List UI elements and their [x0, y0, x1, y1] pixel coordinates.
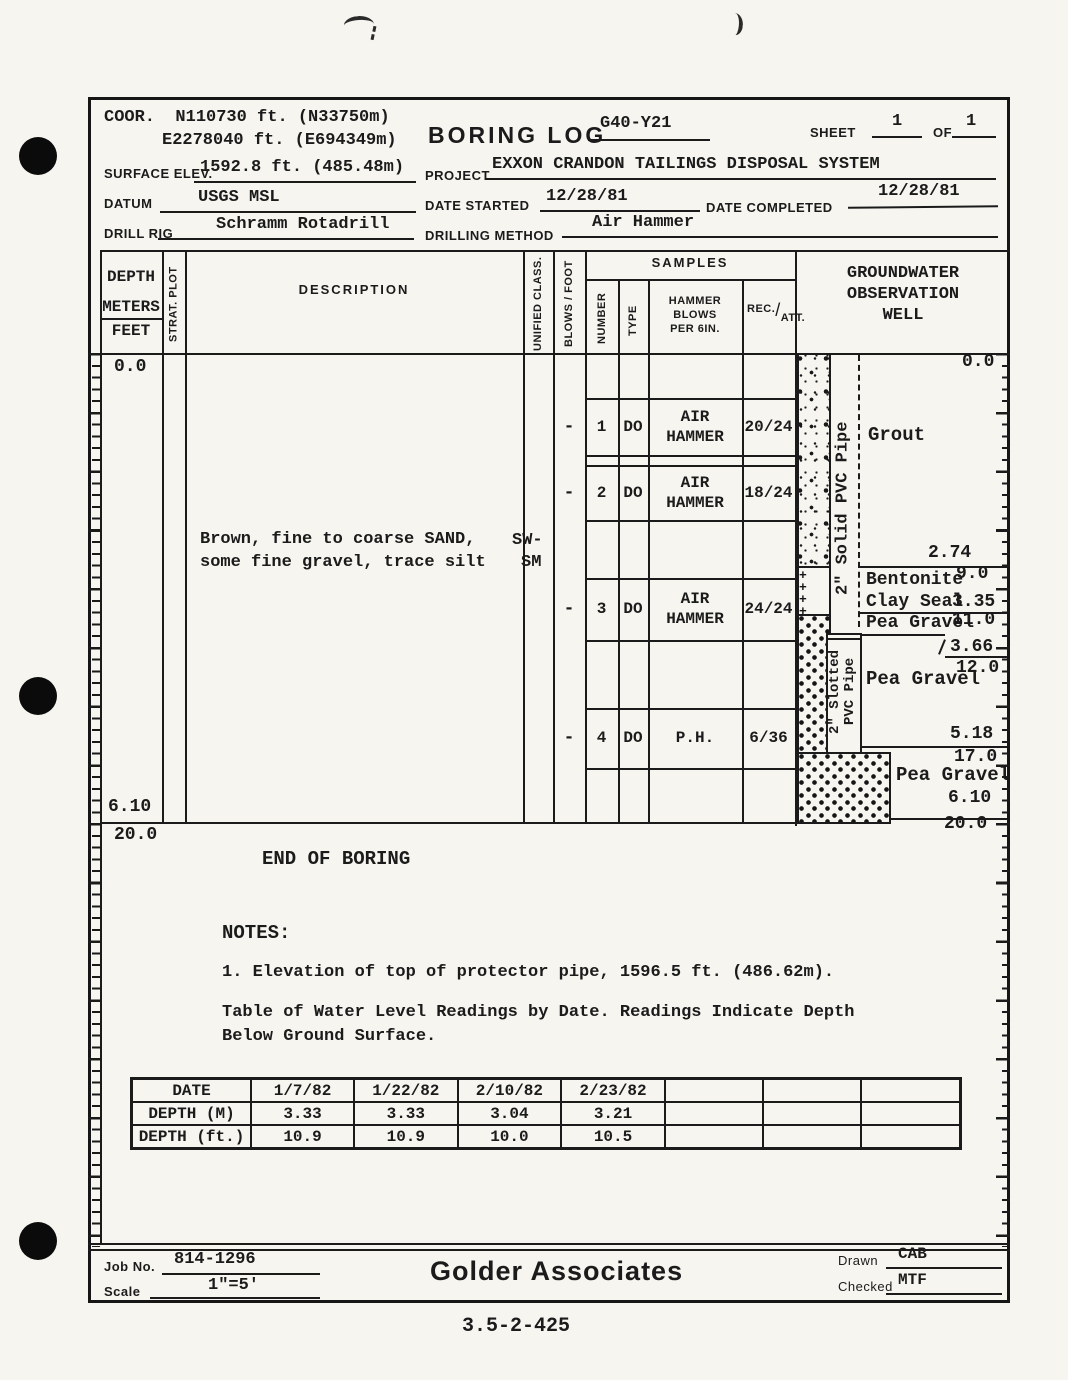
grid-line — [88, 1243, 1010, 1245]
well-depth-mark: 11.0 — [952, 610, 995, 630]
project-value: EXXON CRANDON TAILINGS DISPOSAL SYSTEM — [492, 155, 880, 174]
blows-value: - — [553, 465, 585, 520]
grid-line — [585, 279, 795, 281]
rule-line — [162, 1273, 320, 1275]
surface-elev-value: 1592.8 ft. (485.48m) — [200, 158, 404, 177]
table-cell: 3.04 — [458, 1102, 562, 1125]
drilling-method-label: DRILLING METHOD — [425, 228, 554, 243]
sample-number: 1 — [585, 418, 618, 436]
checked-label: Checked — [838, 1279, 893, 1294]
table-cell: 10.0 — [458, 1125, 562, 1149]
strat-plot-column-header: STRAT. PLOT — [162, 258, 185, 350]
punch-hole — [19, 137, 57, 175]
sample-row: 4 DO P.H. 6/36 — [585, 708, 795, 768]
rule-line — [160, 211, 416, 213]
well-zone-label-grout: Grout — [868, 424, 925, 446]
feet-label: FEET — [100, 322, 162, 340]
rule-line — [158, 238, 414, 240]
water-table-caption-line1: Table of Water Level Readings by Date. R… — [222, 1003, 855, 1022]
table-cell — [665, 1125, 763, 1149]
depth-ruler-right-minor — [1002, 353, 1010, 1247]
date-completed-label: DATE COMPLETED — [706, 200, 833, 215]
description-line: Brown, fine to coarse SAND, — [200, 528, 486, 551]
well-depth-mark: 2.74 — [928, 543, 971, 563]
well-header-line: GROUNDWATER — [847, 263, 959, 284]
date-completed-value: 12/28/81 — [878, 182, 960, 201]
unified-class-value: SW- SM — [512, 530, 543, 574]
unified-class-column-header: UNIFIED CLASS. — [524, 256, 552, 352]
water-table-caption-line2: Below Ground Surface. — [222, 1027, 436, 1046]
table-cell: 3.21 — [561, 1102, 665, 1125]
sample-type: DO — [618, 418, 648, 436]
depth-mark-bottom-ft: 20.0 — [114, 825, 157, 845]
rule-line — [486, 178, 996, 180]
sample-number: 3 — [585, 600, 618, 618]
sample-type: DO — [618, 729, 648, 747]
table-cell: 2/10/82 — [458, 1079, 562, 1103]
table-cell — [763, 1079, 861, 1103]
table-cell — [763, 1125, 861, 1149]
pen-mark — [343, 14, 375, 35]
note-item-1: 1. Elevation of top of protector pipe, 1… — [222, 963, 834, 982]
table-row: DEPTH (ft.) 10.9 10.9 10.0 10.5 — [132, 1125, 961, 1149]
pipe-edge-dashed-line — [858, 355, 860, 627]
grid-line — [185, 250, 187, 822]
document-title: BORING LOG — [428, 122, 606, 149]
hammer-blows-column-header: HAMMER BLOWS PER 6IN. — [648, 294, 742, 336]
slash-glyph: / — [775, 300, 781, 320]
sample-type: DO — [618, 484, 648, 502]
table-cell: 10.9 — [354, 1125, 458, 1149]
well-depth-mark: 20.0 — [944, 814, 987, 834]
drawn-label: Drawn — [838, 1253, 878, 1268]
sample-rec-att: 18/24 — [742, 484, 795, 502]
type-column-header: TYPE — [620, 292, 646, 350]
datum-value: USGS MSL — [198, 188, 280, 207]
grid-line — [585, 455, 795, 457]
drawn-value: CAB — [898, 1245, 927, 1263]
depth-mark-top: 0.0 — [114, 357, 146, 377]
sample-hammer-blows: P.H. — [648, 728, 742, 748]
well-bentonite-annulus: + + + + + + + + + + + + + + + + + + + + … — [797, 566, 831, 618]
table-cell: 10.9 — [251, 1125, 354, 1149]
rule-line — [540, 210, 700, 212]
well-header-line: WELL — [883, 305, 924, 326]
blows-value: - — [553, 708, 585, 768]
well-depth-mark: 3.66 — [950, 637, 993, 657]
job-no-value: 814-1296 — [174, 1250, 256, 1269]
table-cell — [665, 1079, 763, 1103]
samples-header: SAMPLES — [585, 255, 795, 270]
depth-column-header: DEPTH — [100, 268, 162, 286]
sample-row: 2 DO AIR HAMMER 18/24 — [585, 465, 795, 520]
slotted-pipe-section: 2" Slotted PVC Pipe — [826, 633, 862, 754]
description-column-header: DESCRIPTION — [185, 282, 523, 297]
sample-row: 3 DO AIR HAMMER 24/24 — [585, 578, 795, 640]
punch-hole — [19, 677, 57, 715]
sample-rec-att: 24/24 — [742, 600, 795, 618]
well-zone-label-bentonite-2: Clay Seal — [866, 592, 963, 612]
grid-line — [100, 353, 1010, 355]
sample-hammer-blows: AIR HAMMER — [648, 407, 742, 447]
checked-value: MTF — [898, 1271, 927, 1289]
table-cell — [665, 1102, 763, 1125]
drill-rig-value: Schramm Rotadrill — [216, 215, 389, 234]
table-cell: 10.5 — [561, 1125, 665, 1149]
depth-mark-bottom-m: 6.10 — [108, 797, 151, 817]
notes-heading: NOTES: — [222, 922, 290, 944]
rule-line — [886, 1267, 1002, 1269]
well-pea-gravel-base — [797, 752, 891, 824]
project-label: PROJECT — [425, 168, 490, 183]
table-row: DATE 1/7/82 1/22/82 2/10/82 2/23/82 — [132, 1079, 961, 1103]
sample-hammer-blows: AIR HAMMER — [648, 473, 742, 513]
grid-line — [585, 520, 795, 522]
rule-line — [952, 136, 996, 138]
grid-line — [100, 822, 795, 824]
description-line: some fine gravel, trace silt — [200, 551, 486, 574]
coordinates-east: E2278040 ft. (E694349m) — [162, 131, 397, 150]
coordinates-north: COOR. N110730 ft. (N33750m) — [104, 108, 390, 127]
boring-id: G40-Y21 — [600, 114, 671, 133]
grid-line — [585, 768, 795, 770]
well-grout-annulus — [797, 355, 831, 566]
sample-rec-att: 6/36 — [742, 729, 795, 747]
well-depth-mark: 5.18 — [950, 724, 993, 744]
datum-label: DATUM — [104, 196, 152, 211]
table-cell — [763, 1102, 861, 1125]
table-cell — [861, 1125, 961, 1149]
well-zone-line — [862, 634, 945, 636]
slotted-pvc-pipe-label: 2" Slotted PVC Pipe — [828, 635, 860, 748]
table-row: DEPTH (M) 3.33 3.33 3.04 3.21 — [132, 1102, 961, 1125]
end-of-boring-text: END OF BORING — [262, 848, 410, 870]
grid-line — [100, 250, 102, 1245]
rule-line — [886, 1293, 1002, 1295]
of-label: OF — [933, 125, 952, 140]
solid-pvc-pipe-label: 2" Solid PVC Pipe — [828, 368, 858, 648]
row-label: DEPTH (ft.) — [132, 1125, 252, 1149]
rule-line — [588, 139, 710, 141]
well-depth-mark: 3.35 — [952, 592, 995, 612]
well-zone-label-pea-gravel-3: Pea Gravel — [896, 764, 1010, 786]
scale-value: 1"=5' — [208, 1276, 259, 1295]
table-cell — [861, 1079, 961, 1103]
soil-description: Brown, fine to coarse SAND, some fine gr… — [200, 528, 486, 574]
unified-class-line: SW- — [512, 530, 543, 552]
document-number: 3.5-2-425 — [462, 1315, 570, 1338]
drilling-method-value: Air Hammer — [592, 213, 694, 232]
date-started-value: 12/28/81 — [546, 187, 628, 206]
water-level-table: DATE 1/7/82 1/22/82 2/10/82 2/23/82 DEPT… — [130, 1077, 962, 1150]
job-no-label: Job No. — [104, 1259, 155, 1274]
pen-mark — [726, 12, 744, 36]
sheet-number: 1 — [892, 112, 902, 131]
row-label: DATE — [132, 1079, 252, 1103]
company-name: Golder Associates — [430, 1256, 683, 1287]
row-label: DEPTH (M) — [132, 1102, 252, 1125]
surface-elev-label: SURFACE ELEV. — [104, 166, 213, 181]
sample-hammer-blows: AIR HAMMER — [648, 589, 742, 629]
scale-label: Scale — [104, 1284, 140, 1299]
rec-label: REC. — [747, 303, 775, 315]
hammer-header-line: BLOWS — [673, 308, 716, 322]
punch-hole — [19, 1222, 57, 1260]
well-header-line: OBSERVATION — [847, 284, 959, 305]
grid-line — [585, 640, 795, 642]
blows-value: - — [553, 398, 585, 455]
date-started-label: DATE STARTED — [425, 198, 529, 213]
table-cell — [861, 1102, 961, 1125]
table-cell: 1/22/82 — [354, 1079, 458, 1103]
sheet-total: 1 — [966, 112, 976, 131]
well-depth-mark: 0.0 — [962, 352, 994, 372]
hammer-header-line: PER 6IN. — [670, 322, 720, 336]
rule-line — [872, 136, 922, 138]
number-column-header: NUMBER — [588, 285, 616, 351]
hammer-header-line: HAMMER — [669, 294, 722, 308]
table-cell: 2/23/82 — [561, 1079, 665, 1103]
meters-label: METERS — [100, 298, 162, 320]
grid-line — [100, 250, 1010, 252]
well-depth-mark: 6.10 — [948, 788, 991, 808]
depth-ruler-left-minor — [92, 353, 100, 1247]
sample-rec-att: 20/24 — [742, 418, 795, 436]
well-zone-label-pea-gravel-2: Pea Gravel — [866, 668, 980, 690]
rule-line — [150, 1297, 320, 1299]
table-cell: 1/7/82 — [251, 1079, 354, 1103]
sheet-label: SHEET — [810, 125, 856, 140]
sample-type: DO — [618, 600, 648, 618]
sample-number: 4 — [585, 729, 618, 747]
rule-line — [562, 236, 998, 238]
unified-class-line: SM — [512, 552, 543, 574]
well-zone-label-bentonite-1: Bentonite — [866, 570, 963, 590]
table-cell: 3.33 — [251, 1102, 354, 1125]
sample-row: 1 DO AIR HAMMER 20/24 — [585, 398, 795, 455]
sample-number: 2 — [585, 484, 618, 502]
blows-value: - — [553, 578, 585, 640]
rule-line — [194, 181, 416, 183]
scanned-boring-log-page: { "header": { "coor_label": "COOR.", "co… — [0, 0, 1068, 1380]
blows-foot-column-header: BLOWS / FOOT — [555, 256, 583, 352]
groundwater-well-header: GROUNDWATER OBSERVATION WELL — [797, 263, 1009, 326]
table-cell: 3.33 — [354, 1102, 458, 1125]
